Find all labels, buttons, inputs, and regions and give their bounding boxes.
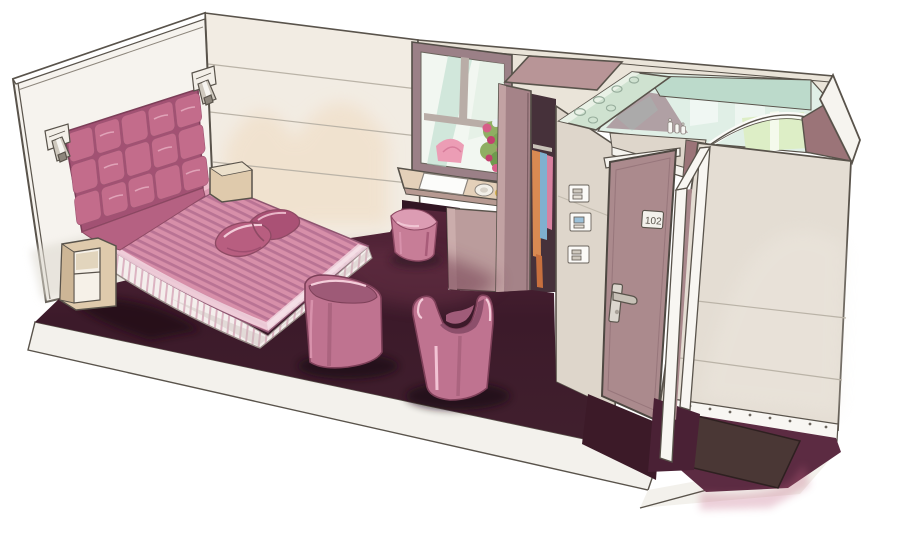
svg-text:102: 102 — [645, 216, 663, 228]
